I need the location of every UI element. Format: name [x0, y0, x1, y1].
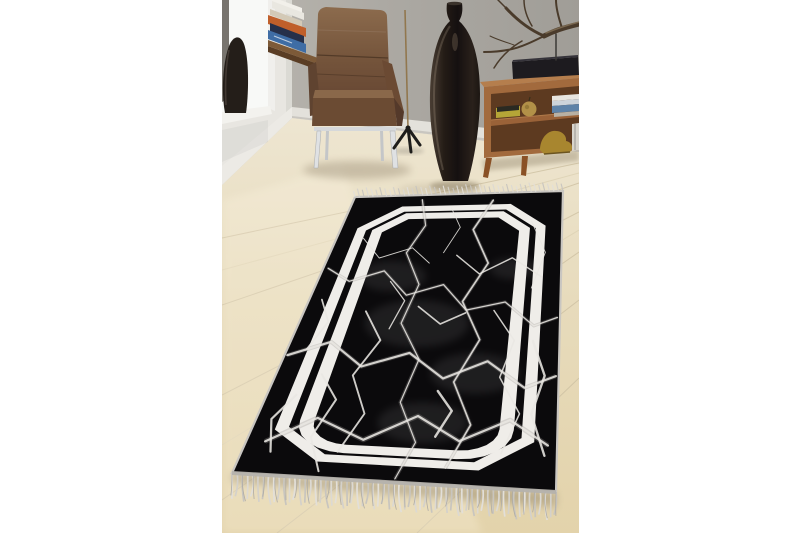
seat-cushion: [312, 98, 397, 126]
page-background: { "image": { "type": "product-photo", "s…: [0, 0, 800, 533]
gold-apple-ornament: [522, 102, 537, 117]
shelf-books: [552, 94, 579, 117]
product-photo: [222, 0, 579, 533]
chrome-frame: [314, 127, 396, 131]
room-scene: [222, 0, 579, 533]
marble-smudge: [490, 258, 538, 279]
lower-books: [572, 123, 579, 151]
